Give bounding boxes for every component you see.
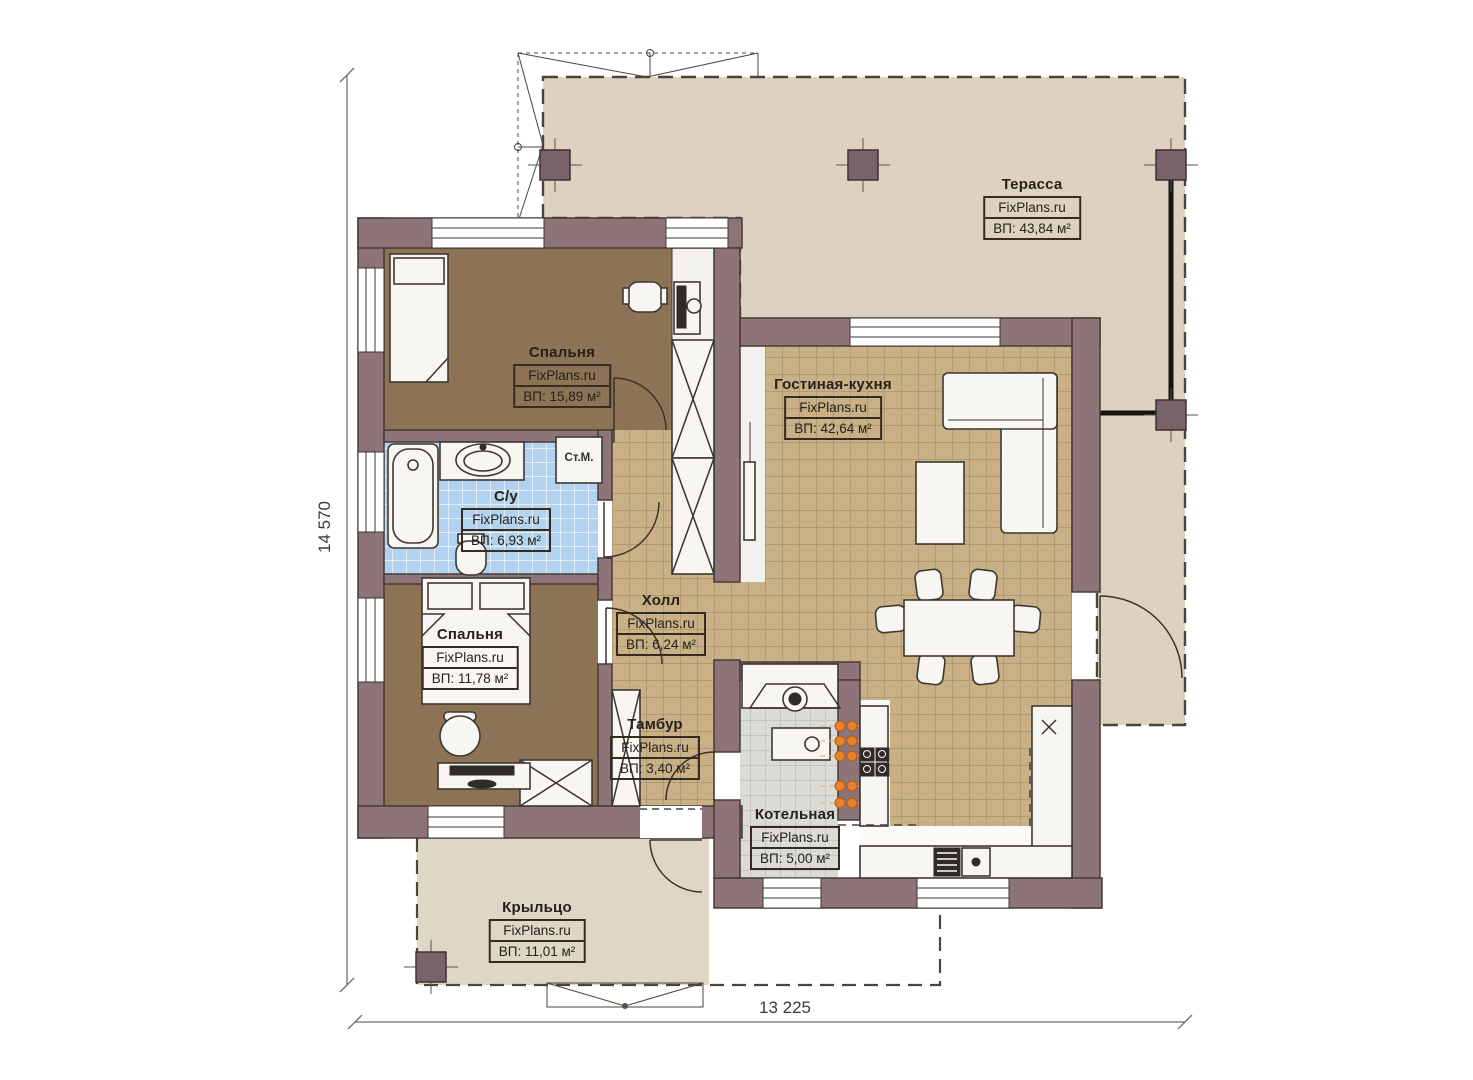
room-name: С/у bbox=[461, 488, 551, 505]
room-info-box: FixPlans.ru ВП: 11,01 м² bbox=[489, 919, 586, 963]
room-label-bedroom1: Спальня FixPlans.ru ВП: 15,89 м² bbox=[513, 344, 611, 408]
room-area: ВП: 11,01 м² bbox=[491, 940, 584, 961]
room-info-box: FixPlans.ru ВП: 15,89 м² bbox=[513, 364, 611, 408]
room-info-box: FixPlans.ru ВП: 3,40 м² bbox=[610, 736, 700, 780]
room-area: ВП: 11,78 м² bbox=[424, 667, 517, 688]
room-label-bathroom: С/у FixPlans.ru ВП: 6,93 м² bbox=[461, 488, 551, 552]
floor-plan-page: Терасса FixPlans.ru ВП: 43,84 м² Спальня… bbox=[0, 0, 1473, 1080]
entrance-door-opening bbox=[640, 806, 702, 838]
room-label-bedroom2: Спальня FixPlans.ru ВП: 11,78 м² bbox=[422, 626, 519, 690]
room-name: Холл bbox=[616, 592, 706, 609]
floor-plan-drawing bbox=[0, 0, 1473, 1080]
room-area: ВП: 43,84 м² bbox=[985, 217, 1079, 238]
window bbox=[432, 218, 544, 248]
room-name: Гостиная-кухня bbox=[774, 376, 892, 393]
watermark: FixPlans.ru bbox=[424, 648, 517, 667]
room-area: ВП: 5,00 м² bbox=[752, 847, 838, 868]
room-info-box: FixPlans.ru ВП: 11,78 м² bbox=[422, 646, 519, 690]
room-label-boiler-room: Котельная FixPlans.ru ВП: 5,00 м² bbox=[750, 806, 840, 870]
watermark: FixPlans.ru bbox=[612, 738, 698, 757]
room-name: Терасса bbox=[983, 176, 1081, 193]
watermark: FixPlans.ru bbox=[618, 614, 704, 633]
room-area: ВП: 42,64 м² bbox=[786, 417, 880, 438]
wardrobe bbox=[672, 340, 714, 458]
wardrobe bbox=[672, 458, 714, 574]
room-label-vestibule: Тамбур FixPlans.ru ВП: 3,40 м² bbox=[610, 716, 700, 780]
window bbox=[666, 218, 728, 248]
room-label-porch: Крыльцо FixPlans.ru ВП: 11,01 м² bbox=[489, 899, 586, 963]
dimension-vertical: 14 570 bbox=[315, 482, 335, 572]
window bbox=[358, 452, 384, 532]
room-name: Котельная bbox=[750, 806, 840, 823]
room-name: Тамбур bbox=[610, 716, 700, 733]
watermark: FixPlans.ru bbox=[985, 198, 1079, 217]
room-area: ВП: 15,89 м² bbox=[515, 385, 609, 406]
watermark: FixPlans.ru bbox=[463, 510, 549, 529]
watermark: FixPlans.ru bbox=[786, 398, 880, 417]
watermark: FixPlans.ru bbox=[491, 921, 584, 940]
watermark: FixPlans.ru bbox=[515, 366, 609, 385]
room-info-box: FixPlans.ru ВП: 6,93 м² bbox=[461, 508, 551, 552]
porch-steps bbox=[547, 983, 703, 1009]
window bbox=[358, 598, 384, 682]
window bbox=[917, 878, 1009, 908]
room-info-box: FixPlans.ru ВП: 42,64 м² bbox=[784, 396, 882, 440]
room-label-living-kitchen: Гостиная-кухня FixPlans.ru ВП: 42,64 м² bbox=[774, 376, 892, 440]
window bbox=[428, 806, 504, 838]
room-area: ВП: 6,93 м² bbox=[463, 529, 549, 550]
room-area: ВП: 6,24 м² bbox=[618, 633, 704, 654]
room-name: Спальня bbox=[513, 344, 611, 361]
room-name: Спальня bbox=[422, 626, 519, 643]
washing-machine-label: Ст.М. bbox=[557, 452, 601, 464]
room-label-terrace: Терасса FixPlans.ru ВП: 43,84 м² bbox=[983, 176, 1081, 240]
watermark: FixPlans.ru bbox=[752, 828, 838, 847]
room-name: Крыльцо bbox=[489, 899, 586, 916]
window bbox=[358, 268, 384, 352]
room-area: ВП: 3,40 м² bbox=[612, 757, 698, 778]
room-info-box: FixPlans.ru ВП: 6,24 м² bbox=[616, 612, 706, 656]
dimension-horizontal: 13 225 bbox=[740, 998, 830, 1018]
terrace-sliding-door bbox=[850, 318, 1000, 346]
window bbox=[763, 878, 821, 908]
room-info-box: FixPlans.ru ВП: 43,84 м² bbox=[983, 196, 1081, 240]
room-label-hall: Холл FixPlans.ru ВП: 6,24 м² bbox=[616, 592, 706, 656]
room-info-box: FixPlans.ru ВП: 5,00 м² bbox=[750, 826, 840, 870]
